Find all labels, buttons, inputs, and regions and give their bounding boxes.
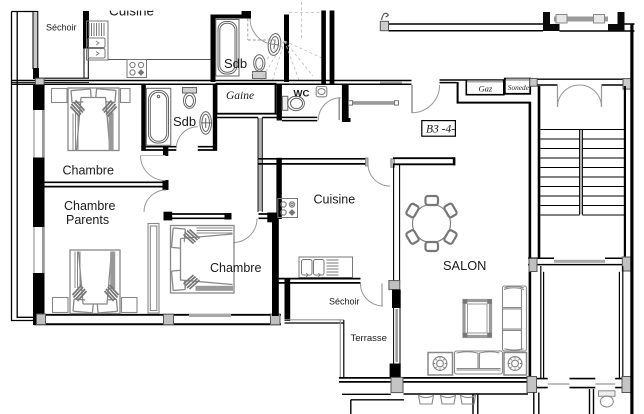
svg-text:Séchoir: Séchoir xyxy=(329,297,360,307)
svg-text:Cuisine: Cuisine xyxy=(314,193,356,207)
svg-text:Chambre: Chambre xyxy=(210,261,261,275)
svg-text:SALON: SALON xyxy=(443,258,486,273)
svg-text:Sdb: Sdb xyxy=(224,56,247,71)
svg-text:Chambre: Chambre xyxy=(63,164,114,178)
svg-text:Gaz: Gaz xyxy=(479,84,493,94)
svg-text:Parents: Parents xyxy=(66,213,109,227)
svg-text:B3 -4-: B3 -4- xyxy=(426,124,455,136)
svg-text:Séchoir: Séchoir xyxy=(46,23,77,33)
svg-text:Terrasse: Terrasse xyxy=(351,333,387,344)
svg-text:Sonede: Sonede xyxy=(508,83,530,92)
svg-text:Gaine: Gaine xyxy=(226,90,254,102)
svg-text:Chambre: Chambre xyxy=(64,199,115,213)
svg-text:Sdb: Sdb xyxy=(173,114,196,129)
svg-text:WC: WC xyxy=(294,89,310,100)
